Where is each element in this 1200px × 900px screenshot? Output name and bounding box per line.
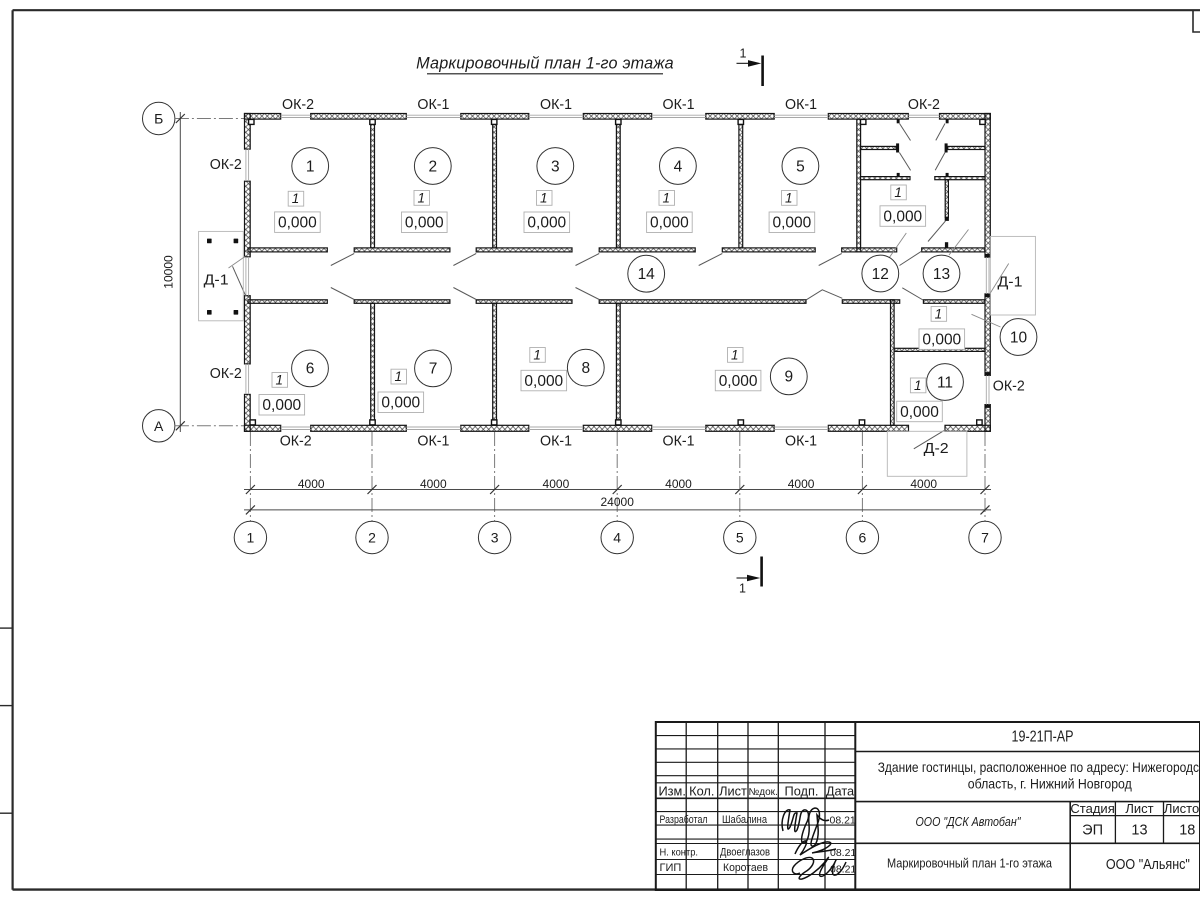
svg-text:8: 8 [581,360,590,377]
svg-text:4000: 4000 [910,477,937,491]
svg-text:ОК-2: ОК-2 [210,366,242,382]
svg-text:3: 3 [491,530,499,546]
svg-text:1: 1 [395,369,403,384]
svg-text:Б: Б [154,111,163,127]
svg-text:0,000: 0,000 [381,395,420,412]
svg-text:1: 1 [935,306,943,321]
svg-text:1: 1 [739,582,746,596]
svg-text:0,000: 0,000 [900,404,939,421]
svg-text:0,000: 0,000 [773,215,812,232]
svg-text:Здание гостинцы, расположенное: Здание гостинцы, расположенное по адресу… [878,760,1200,775]
svg-text:0,000: 0,000 [922,332,961,349]
svg-text:№док.: №док. [749,787,778,798]
svg-text:0,000: 0,000 [405,215,444,232]
svg-text:18: 18 [1179,822,1195,838]
svg-text:13: 13 [933,266,950,283]
svg-text:1: 1 [533,347,541,362]
svg-text:ГИП: ГИП [660,862,682,874]
svg-text:ОК-1: ОК-1 [540,97,572,113]
svg-text:4: 4 [674,158,683,175]
svg-text:4000: 4000 [788,477,815,491]
svg-text:11: 11 [937,374,953,391]
svg-text:ОК-1: ОК-1 [417,97,449,113]
svg-text:6: 6 [306,361,315,378]
svg-text:1: 1 [740,47,747,61]
svg-text:ОК-2: ОК-2 [280,434,312,450]
svg-text:4: 4 [613,530,621,546]
svg-text:Кол.: Кол. [689,783,714,798]
svg-text:1: 1 [306,158,315,175]
svg-text:0,000: 0,000 [719,373,758,390]
svg-text:ООО "ДСК Автобан": ООО "ДСК Автобан" [916,814,1022,829]
svg-text:1: 1 [247,530,255,546]
svg-text:ОК-2: ОК-2 [993,378,1025,394]
svg-text:Маркировочный план 1-го этажа: Маркировочный план 1-го этажа [416,55,674,73]
svg-text:Маркировочный план 1-го этажа: Маркировочный план 1-го этажа [887,855,1053,870]
svg-text:Листов: Листов [1164,801,1200,816]
svg-text:10000: 10000 [162,255,176,289]
svg-text:Стадия: Стадия [1070,801,1114,816]
svg-text:0,000: 0,000 [527,215,566,232]
svg-text:Д-1: Д-1 [204,273,229,289]
svg-text:ООО "Альянс": ООО "Альянс" [1106,857,1190,873]
svg-text:ОК-1: ОК-1 [417,434,449,450]
svg-text:1: 1 [731,347,739,362]
svg-text:1: 1 [418,190,426,205]
svg-text:24000: 24000 [601,495,635,509]
svg-text:10: 10 [1010,329,1028,346]
svg-text:4000: 4000 [665,477,692,491]
svg-text:ОК-1: ОК-1 [540,434,572,450]
svg-text:1: 1 [292,191,300,206]
svg-text:Лист: Лист [719,783,747,798]
svg-text:Шабалина: Шабалина [722,814,768,826]
svg-text:1: 1 [540,190,548,205]
svg-text:2: 2 [428,158,437,175]
svg-text:14: 14 [638,266,656,283]
svg-text:4000: 4000 [420,477,447,491]
svg-text:Двоеглазов: Двоеглазов [720,847,770,859]
svg-text:0,000: 0,000 [262,397,301,414]
svg-text:ОК-2: ОК-2 [282,97,314,113]
svg-text:0,000: 0,000 [650,215,689,232]
svg-text:1: 1 [785,190,793,205]
svg-text:4000: 4000 [298,477,325,491]
svg-text:Коротаев: Коротаев [723,862,768,874]
svg-text:Дата: Дата [826,783,855,798]
svg-text:ОК-1: ОК-1 [663,97,695,113]
svg-text:Подп.: Подп. [785,783,819,798]
svg-text:3: 3 [551,158,560,175]
svg-text:19-21П-АР: 19-21П-АР [1012,729,1074,746]
svg-text:7: 7 [981,530,989,546]
svg-text:4000: 4000 [543,477,570,491]
svg-text:1: 1 [914,378,922,393]
svg-text:ОК-1: ОК-1 [663,434,695,450]
svg-text:6: 6 [859,530,867,546]
svg-text:Н. контр.: Н. контр. [660,846,699,858]
svg-text:Изм.: Изм. [658,783,685,798]
svg-text:5: 5 [796,158,805,175]
svg-text:ОК-1: ОК-1 [785,434,817,450]
svg-text:2: 2 [368,530,376,546]
svg-text:Лист: Лист [1125,801,1153,816]
svg-text:ЭП: ЭП [1082,822,1103,838]
svg-text:А: А [154,418,164,434]
svg-text:Д-2: Д-2 [924,441,949,457]
svg-text:08.21: 08.21 [830,815,856,827]
svg-text:0,000: 0,000 [524,373,563,390]
svg-text:1: 1 [663,190,671,205]
svg-text:1: 1 [894,185,902,200]
svg-text:0,000: 0,000 [883,209,922,226]
svg-text:0,000: 0,000 [278,215,317,232]
svg-text:ОК-2: ОК-2 [210,157,242,173]
svg-text:7: 7 [429,361,438,378]
svg-text:Разработал: Разработал [660,814,708,826]
svg-text:ОК-2: ОК-2 [908,97,940,113]
svg-text:12: 12 [872,266,889,283]
svg-text:1: 1 [276,372,284,387]
svg-text:ОК-1: ОК-1 [785,97,817,113]
svg-text:область, г. Нижний Новгород: область, г. Нижний Новгород [968,777,1132,792]
svg-text:5: 5 [736,530,744,546]
svg-text:Д-1: Д-1 [998,275,1023,291]
svg-text:9: 9 [784,369,793,386]
svg-text:13: 13 [1131,822,1147,838]
